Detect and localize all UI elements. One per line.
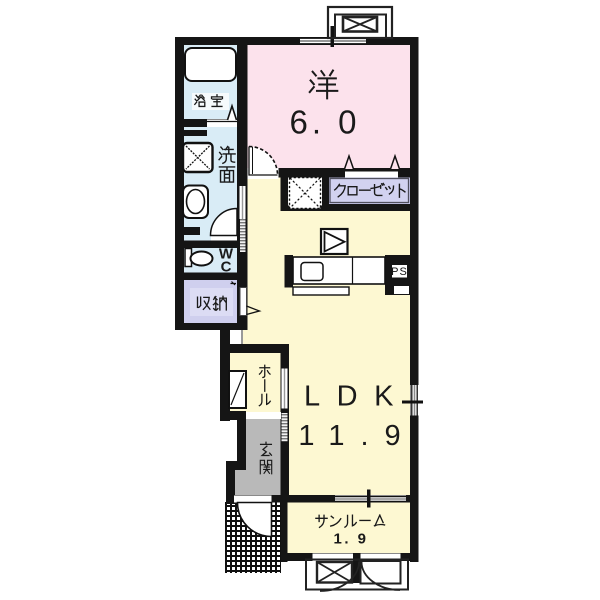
svg-text:11.9: 11.9 <box>298 420 416 452</box>
svg-text:6. 0: 6. 0 <box>289 104 360 141</box>
svg-text:LDK: LDK <box>304 381 410 413</box>
svg-text:PS: PS <box>391 266 408 278</box>
svg-text:1. 9: 1. 9 <box>333 531 368 548</box>
svg-text:C: C <box>221 259 232 276</box>
